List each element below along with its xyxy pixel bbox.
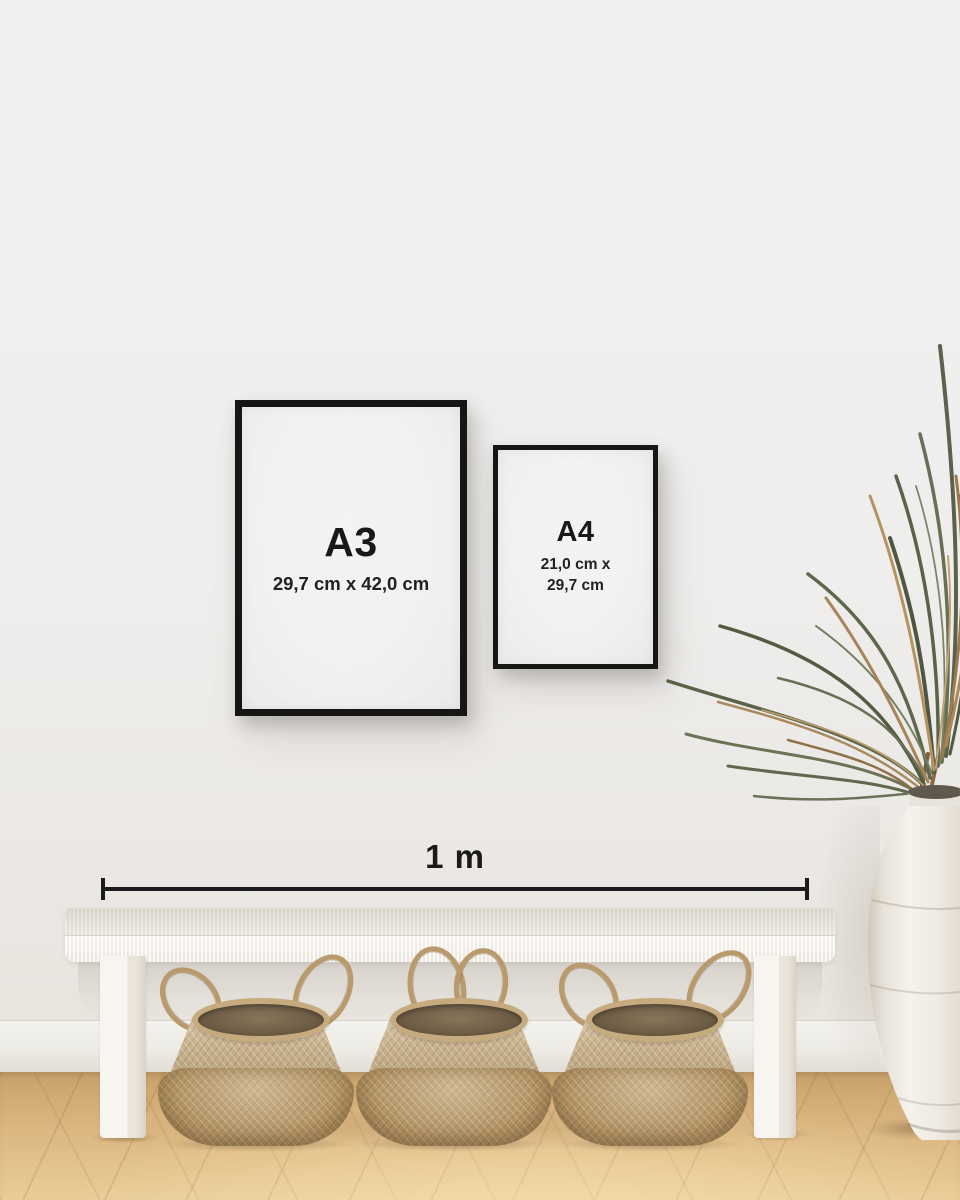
scale-bar-tick-right bbox=[805, 878, 809, 900]
seagrass-basket-left bbox=[158, 960, 354, 1152]
scale-bar-line bbox=[103, 887, 807, 891]
basket-rim bbox=[192, 998, 330, 1042]
frame-a3-label: A3 bbox=[324, 522, 377, 563]
seagrass-basket-right bbox=[552, 960, 748, 1152]
frame-a4-label: A4 bbox=[556, 518, 594, 547]
seagrass-basket-center bbox=[356, 960, 552, 1152]
bench-seat-top-face bbox=[65, 908, 835, 935]
basket-belly bbox=[356, 1068, 552, 1146]
floor-vase bbox=[858, 780, 960, 1150]
palm-plant bbox=[658, 326, 960, 810]
frame-a3: A3 29,7 cm x 42,0 cm bbox=[235, 400, 467, 716]
bench-leg-right bbox=[754, 956, 796, 1138]
frame-a4-dimensions-line2: 29,7 cm bbox=[541, 576, 611, 596]
bench-leg-left bbox=[100, 956, 146, 1138]
frame-a4: A4 21,0 cm x 29,7 cm bbox=[493, 445, 658, 669]
size-guide-mockup-scene: A3 29,7 cm x 42,0 cm A4 21,0 cm x 29,7 c… bbox=[0, 0, 960, 1200]
basket-rim bbox=[586, 998, 724, 1042]
frame-a4-dimensions: 21,0 cm x 29,7 cm bbox=[541, 555, 611, 596]
frame-a4-dimensions-line1: 21,0 cm x bbox=[541, 555, 611, 575]
scale-bar-label: 1 m bbox=[103, 838, 807, 876]
scale-bar-tick-left bbox=[101, 878, 105, 900]
basket-rim bbox=[390, 998, 528, 1042]
basket-belly bbox=[552, 1068, 748, 1146]
frame-a3-dimensions: 29,7 cm x 42,0 cm bbox=[273, 573, 429, 595]
basket-belly bbox=[158, 1068, 354, 1146]
